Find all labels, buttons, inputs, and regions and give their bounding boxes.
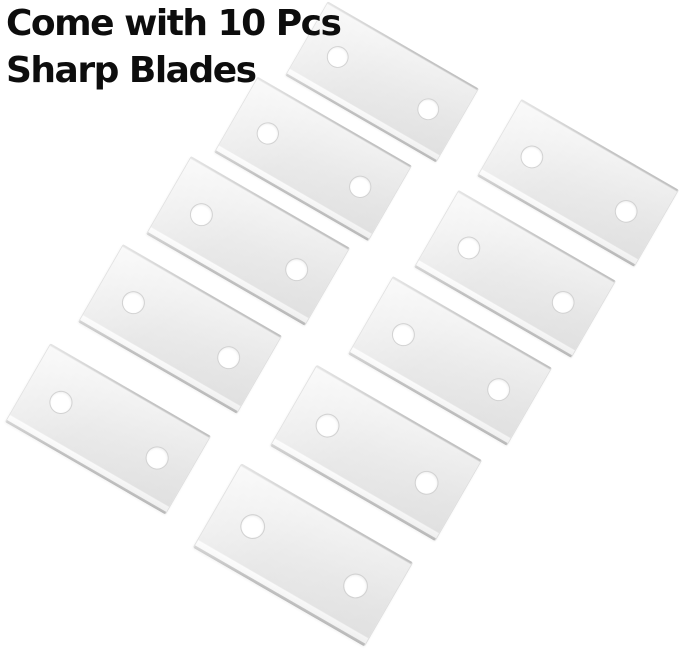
blade-hole-left — [237, 510, 268, 541]
blade-hole-right — [346, 172, 374, 200]
caption: Come with 10 Pcs Sharp Blades — [6, 0, 340, 94]
blade-hole-left — [389, 320, 418, 349]
blade-hole-left — [46, 387, 75, 416]
blades-layer — [0, 0, 679, 653]
blade-hole-right — [612, 197, 640, 225]
caption-line-2: Sharp Blades — [6, 47, 340, 94]
blade-hole-right — [549, 288, 577, 316]
blade-hole-right — [484, 375, 513, 404]
blade-hole-right — [214, 343, 243, 372]
blade-hole-left — [455, 233, 483, 261]
blade-hole-left — [254, 119, 282, 147]
blade-hole-left — [312, 410, 342, 440]
blade-hole-right — [340, 570, 371, 601]
product-image: Come with 10 Pcs Sharp Blades — [0, 0, 679, 653]
blade-hole-right — [282, 255, 311, 284]
blade-hole-right — [414, 95, 441, 122]
blade-hole-right — [142, 443, 171, 472]
blade-hole-left — [187, 200, 216, 229]
blade-hole-left — [518, 142, 546, 170]
caption-line-1: Come with 10 Pcs — [6, 0, 340, 47]
blade-hole-left — [119, 288, 148, 317]
blade-hole-right — [412, 467, 442, 497]
